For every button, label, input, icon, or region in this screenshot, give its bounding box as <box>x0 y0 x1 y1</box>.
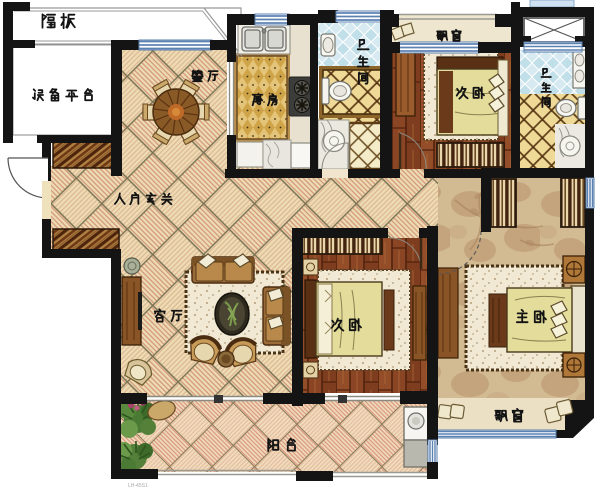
svg-text:LH-45S1: LH-45S1 <box>128 483 148 488</box>
